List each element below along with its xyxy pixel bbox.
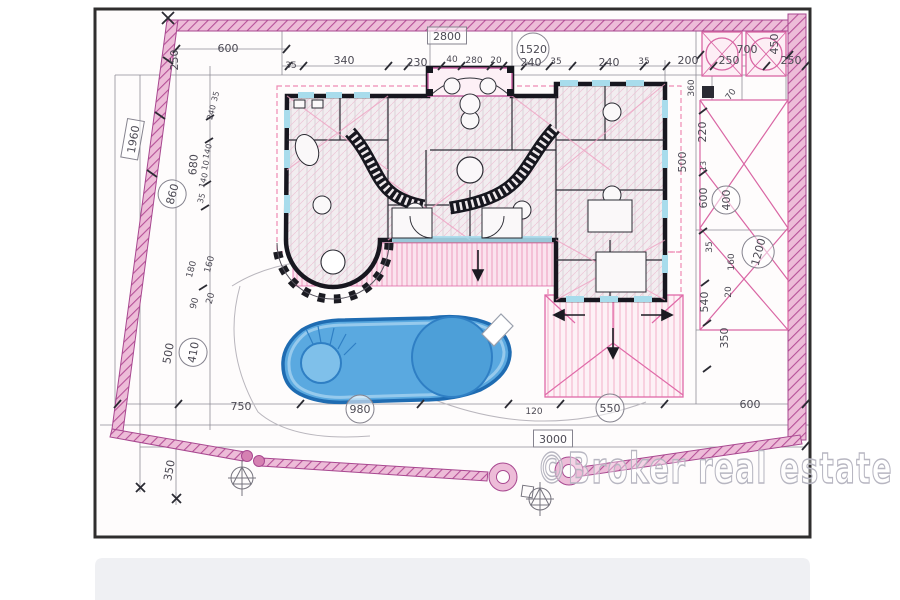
dimension-label: 500 <box>676 152 689 173</box>
svg-text:160: 160 <box>727 253 737 270</box>
svg-text:20: 20 <box>490 56 502 66</box>
svg-text:250: 250 <box>781 54 802 67</box>
svg-text:600: 600 <box>218 42 239 55</box>
boundary-wall-top <box>170 20 806 31</box>
svg-text:35: 35 <box>550 57 561 67</box>
scanned-site-plan-page: 6002502800152035340230402802024035240352… <box>0 0 900 600</box>
svg-text:240: 240 <box>521 56 542 69</box>
dimension-label: 750 <box>231 400 252 413</box>
svg-text:980: 980 <box>350 403 371 416</box>
svg-text:250: 250 <box>168 50 181 71</box>
dimension-label: 280 <box>465 56 482 66</box>
svg-text:280: 280 <box>465 56 482 66</box>
svg-text:240: 240 <box>599 56 620 69</box>
dimension-label: 550 <box>596 394 624 422</box>
swimming-pool <box>283 314 513 402</box>
dimension-label: 600 <box>218 42 239 55</box>
svg-text:230: 230 <box>407 56 428 69</box>
svg-text:700: 700 <box>737 43 758 56</box>
dimension-label: 250 <box>168 50 181 71</box>
svg-text:20: 20 <box>724 286 734 298</box>
dimension-label: 250 <box>781 54 802 67</box>
dimension-label: 360 <box>687 79 697 96</box>
dimension-label: 980 <box>346 395 374 423</box>
pool-spa <box>301 343 341 383</box>
svg-text:600: 600 <box>740 398 761 411</box>
dimension-label: 340 <box>334 54 355 67</box>
svg-text:35: 35 <box>638 57 649 67</box>
svg-text:350: 350 <box>718 328 731 349</box>
pool-deep-end <box>412 317 492 397</box>
dimension-label: 40 <box>446 55 458 65</box>
dimension-label: 2800 <box>428 27 467 44</box>
svg-text:200: 200 <box>678 54 699 67</box>
site-plan-drawing: 6002502800152035340230402802024035240352… <box>0 0 900 600</box>
dimension-label: 700 <box>737 43 758 56</box>
dimension-label: 540 <box>698 292 711 313</box>
dimension-label: 13 <box>699 161 708 171</box>
svg-text:400: 400 <box>720 190 733 211</box>
svg-text:360: 360 <box>687 79 697 96</box>
svg-text:2800: 2800 <box>433 30 461 43</box>
dimension-label: 220 <box>696 122 709 143</box>
svg-text:1520: 1520 <box>519 43 547 56</box>
dimension-label: 120 <box>525 407 542 417</box>
dimension-label: 35 <box>285 61 296 71</box>
dimension-label: 400 <box>712 186 740 214</box>
svg-text:13: 13 <box>699 161 708 171</box>
dimension-label: 450 <box>768 34 781 55</box>
dimension-label: 35 <box>638 57 649 67</box>
dimension-label: 35 <box>550 57 561 67</box>
dimension-label: 240 <box>521 56 542 69</box>
svg-text:680: 680 <box>186 154 201 176</box>
dimension-label: 230 <box>407 56 428 69</box>
svg-text:600: 600 <box>697 188 710 209</box>
dimension-label: 600 <box>697 188 710 209</box>
dimension-label: 200 <box>678 54 699 67</box>
dimension-label: 35 <box>705 241 715 252</box>
dimension-label: 600 <box>740 398 761 411</box>
next-photo-strip <box>95 558 810 600</box>
dimension-label: 680 <box>186 154 201 176</box>
svg-text:35: 35 <box>285 61 296 71</box>
svg-text:220: 220 <box>696 122 709 143</box>
svg-text:340: 340 <box>334 54 355 67</box>
dimension-label: 20 <box>724 286 734 298</box>
dimension-label: 240 <box>599 56 620 69</box>
svg-text:35: 35 <box>705 241 715 252</box>
svg-text:750: 750 <box>231 400 252 413</box>
gate-pillar-core <box>497 471 510 484</box>
boundary-wall-right <box>788 14 806 440</box>
svg-text:450: 450 <box>768 34 781 55</box>
svg-text:40: 40 <box>446 55 458 65</box>
svg-text:550: 550 <box>600 402 621 415</box>
svg-text:540: 540 <box>698 292 711 313</box>
dimension-label: 20 <box>490 56 502 66</box>
svg-text:500: 500 <box>676 152 689 173</box>
dimension-label: 160 <box>727 253 737 270</box>
dimension-label: 350 <box>718 328 731 349</box>
svg-text:120: 120 <box>525 407 542 417</box>
wall-end-post <box>242 451 253 462</box>
pillar-footing <box>702 86 714 98</box>
watermark-text: ©Broker real estate <box>537 444 893 494</box>
wall-end-post <box>254 456 265 467</box>
